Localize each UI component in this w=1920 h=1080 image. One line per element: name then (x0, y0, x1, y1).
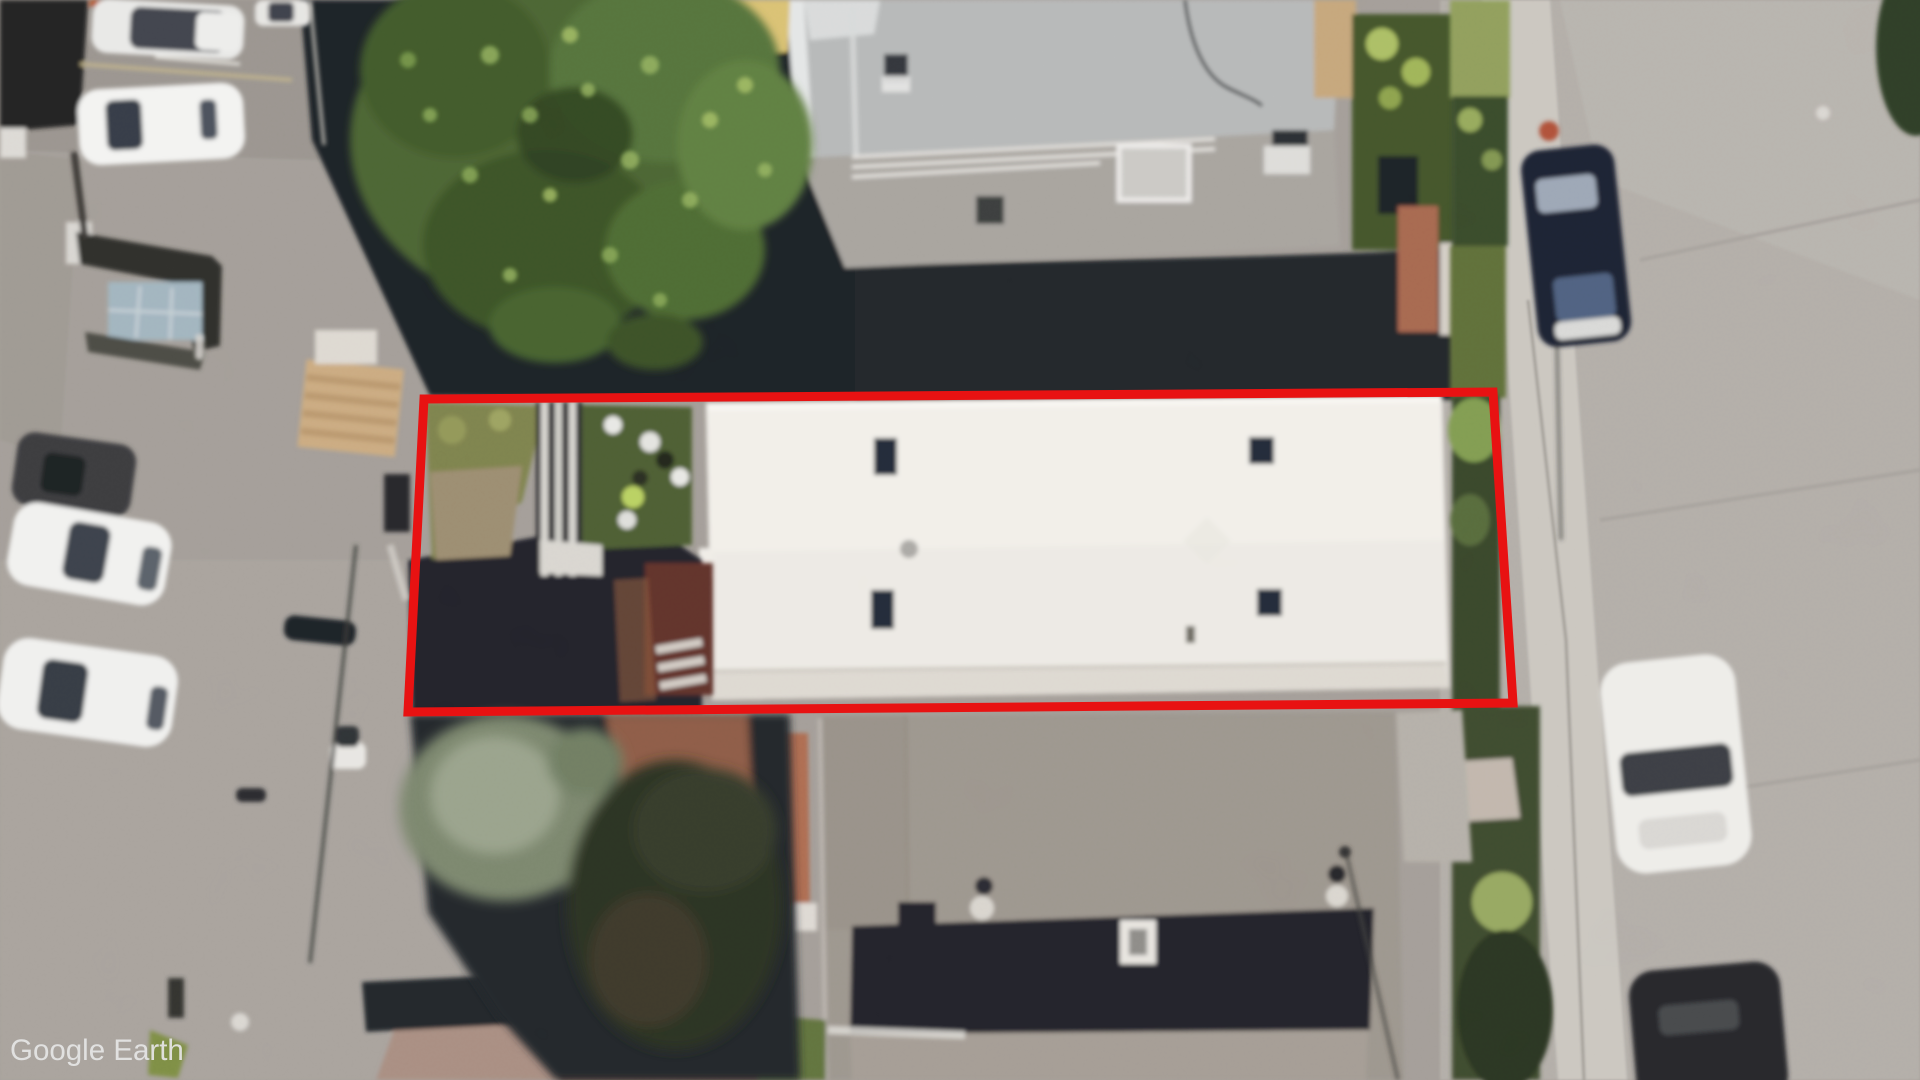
svg-text:Google Earth: Google Earth (10, 1034, 184, 1067)
